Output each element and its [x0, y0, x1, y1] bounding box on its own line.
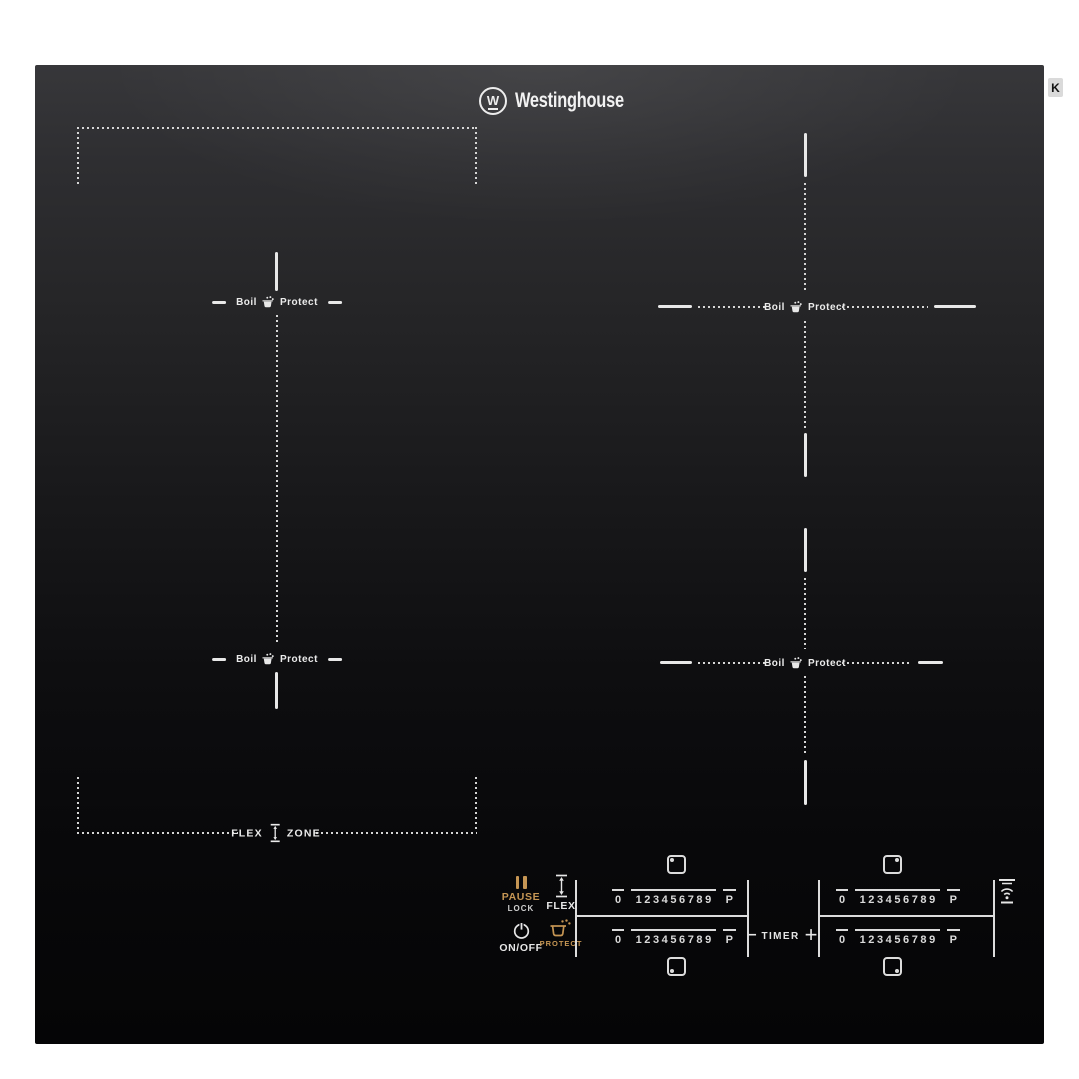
power-level-2[interactable]: 2 [868, 894, 875, 906]
label-dash [328, 301, 342, 304]
power-level-4[interactable]: 4 [885, 934, 892, 946]
power-scale-track: 123456789 [631, 929, 716, 946]
zone-word: ZONE [287, 827, 321, 839]
panel-divider [575, 915, 747, 917]
boil-protect-pot-icon [262, 296, 275, 308]
boil-protect-label-right-front: Boil Protect [764, 657, 846, 669]
power-level-5[interactable]: 5 [670, 934, 677, 946]
zone-cross-line [842, 306, 928, 308]
protect-word: Protect [280, 654, 318, 665]
protect-word: Protect [280, 297, 318, 308]
zone-cross-line [918, 661, 943, 664]
burner-indicator-front-right [883, 957, 902, 976]
watermark-k-badge: K [1048, 78, 1063, 97]
power-level-5[interactable]: 5 [894, 894, 901, 906]
power-level-0[interactable]: 0 [836, 889, 848, 906]
power-level-6[interactable]: 6 [903, 894, 910, 906]
power-level-7[interactable]: 7 [687, 894, 694, 906]
power-level-8[interactable]: 8 [920, 894, 927, 906]
label-dash [328, 658, 342, 661]
timer-plus-button[interactable]: + [805, 927, 818, 943]
power-level-8[interactable]: 8 [920, 934, 927, 946]
label-dash [212, 658, 226, 661]
power-level-3[interactable]: 3 [653, 934, 660, 946]
power-scale-track: 123456789 [631, 889, 716, 906]
flex-zone-top-left-stub [77, 127, 79, 185]
zone-cross-line [804, 183, 806, 293]
flex-zone-bottom-border-left [77, 832, 238, 834]
power-level-4[interactable]: 4 [661, 894, 668, 906]
power-level-1[interactable]: 1 [859, 894, 866, 906]
power-level-5[interactable]: 5 [670, 894, 677, 906]
boil-protect-label-left-rear: Boil Protect [207, 296, 347, 308]
power-level-7[interactable]: 7 [687, 934, 694, 946]
boil-protect-label-left-front: Boil Protect [207, 653, 347, 665]
lock-label: LOCK [496, 904, 546, 913]
power-level-9[interactable]: 9 [705, 894, 712, 906]
flex-zone-bottom-right-stub [475, 777, 477, 831]
flex-zone-bottom-border-right [316, 832, 477, 834]
logo-underline [488, 108, 498, 110]
zone-cross-line [804, 321, 806, 428]
power-level-7[interactable]: 7 [911, 934, 918, 946]
pause-icon [496, 875, 546, 889]
boil-word: Boil [764, 658, 785, 669]
panel-divider [818, 880, 820, 957]
product-photo: W Westinghouse K Boil Protect [0, 0, 1079, 1079]
flex-word: FLEX [231, 827, 263, 839]
power-level-1[interactable]: 1 [635, 894, 642, 906]
power-scale-track: 123456789 [855, 889, 940, 906]
power-level-2[interactable]: 2 [644, 894, 651, 906]
zone-cross-line [804, 676, 806, 755]
westinghouse-circle-w-icon: W [479, 87, 507, 115]
power-level-3[interactable]: 3 [877, 934, 884, 946]
induction-cooktop-glass: W Westinghouse K Boil Protect [35, 65, 1044, 1044]
zone-cross-line [804, 578, 806, 649]
zone-cross-line [275, 672, 278, 709]
power-level-9[interactable]: 9 [929, 934, 936, 946]
boil-protect-pot-icon [262, 653, 275, 665]
power-slider-left-rear[interactable]: 0123456789P [612, 889, 736, 906]
power-level-4[interactable]: 4 [885, 894, 892, 906]
flex-zone-top-border [77, 127, 477, 129]
power-level-6[interactable]: 6 [679, 934, 686, 946]
timer-minus-button[interactable]: – [748, 930, 757, 940]
power-slider-left-front[interactable]: 0123456789P [612, 929, 736, 946]
power-level-9[interactable]: 9 [705, 934, 712, 946]
power-level-P[interactable]: P [947, 929, 960, 946]
protect-pot-icon [549, 919, 573, 938]
hob2hood-wifi-icon[interactable] [997, 877, 1017, 907]
zone-cross-line [658, 305, 692, 308]
boil-word: Boil [236, 654, 257, 665]
boil-protect-pot-icon [790, 301, 803, 313]
panel-divider [818, 915, 993, 917]
zone-cross-line [842, 662, 912, 664]
power-level-8[interactable]: 8 [696, 894, 703, 906]
logo-monogram: W [487, 94, 499, 107]
power-level-2[interactable]: 2 [644, 934, 651, 946]
zone-cross-line [804, 433, 807, 477]
westinghouse-logo: W Westinghouse [479, 87, 655, 115]
zone-cross-line [660, 661, 692, 664]
zone-cross-line [804, 760, 807, 805]
timer-control: – TIMER + [747, 923, 818, 949]
power-level-0[interactable]: 0 [612, 889, 624, 906]
power-scale-track: 123456789 [855, 929, 940, 946]
power-icon [512, 921, 531, 940]
boil-word: Boil [764, 302, 785, 313]
power-level-8[interactable]: 8 [696, 934, 703, 946]
timer-label: TIMER [761, 931, 799, 942]
panel-divider [993, 880, 995, 957]
power-level-P[interactable]: P [723, 929, 736, 946]
label-dash [212, 301, 226, 304]
zone-cross-line [698, 306, 768, 308]
power-level-P[interactable]: P [947, 889, 960, 906]
burner-indicator-front-left [667, 957, 686, 976]
flex-zone-center-divider [276, 315, 278, 645]
zone-cross-line [934, 305, 976, 308]
power-level-6[interactable]: 6 [679, 894, 686, 906]
power-level-9[interactable]: 9 [929, 894, 936, 906]
power-level-7[interactable]: 7 [911, 894, 918, 906]
pause-lock-button[interactable]: PAUSE LOCK [496, 875, 546, 913]
flex-icon [553, 874, 570, 898]
flex-zone-top-right-stub [475, 127, 477, 185]
power-level-1[interactable]: 1 [859, 934, 866, 946]
zone-cross-line [275, 252, 278, 291]
boil-protect-pot-icon [790, 657, 803, 669]
protect-word: Protect [808, 302, 846, 313]
boil-protect-label-right-rear: Boil Protect [764, 301, 846, 313]
pause-label: PAUSE [496, 891, 546, 903]
panel-divider [575, 880, 577, 957]
protect-word: Protect [808, 658, 846, 669]
zone-cross-line [698, 662, 768, 664]
flex-zone-bottom-left-stub [77, 777, 79, 831]
power-slider-right-rear[interactable]: 0123456789P [836, 889, 960, 906]
power-level-1[interactable]: 1 [635, 934, 642, 946]
flex-zone-label: FLEX ZONE [231, 824, 321, 843]
brand-wordmark: Westinghouse [515, 89, 624, 113]
power-level-2[interactable]: 2 [868, 934, 875, 946]
zone-cross-line [804, 133, 807, 177]
power-level-6[interactable]: 6 [903, 934, 910, 946]
power-level-3[interactable]: 3 [653, 894, 660, 906]
power-level-P[interactable]: P [723, 889, 736, 906]
boil-word: Boil [236, 297, 257, 308]
power-level-3[interactable]: 3 [877, 894, 884, 906]
burner-indicator-rear-right [883, 855, 902, 874]
zone-cross-line [804, 528, 807, 572]
burner-indicator-rear-left [667, 855, 686, 874]
power-level-0[interactable]: 0 [612, 929, 624, 946]
power-level-0[interactable]: 0 [836, 929, 848, 946]
flex-stretch-icon [269, 824, 281, 843]
power-level-4[interactable]: 4 [661, 934, 668, 946]
power-slider-right-front[interactable]: 0123456789P [836, 929, 960, 946]
power-level-5[interactable]: 5 [894, 934, 901, 946]
